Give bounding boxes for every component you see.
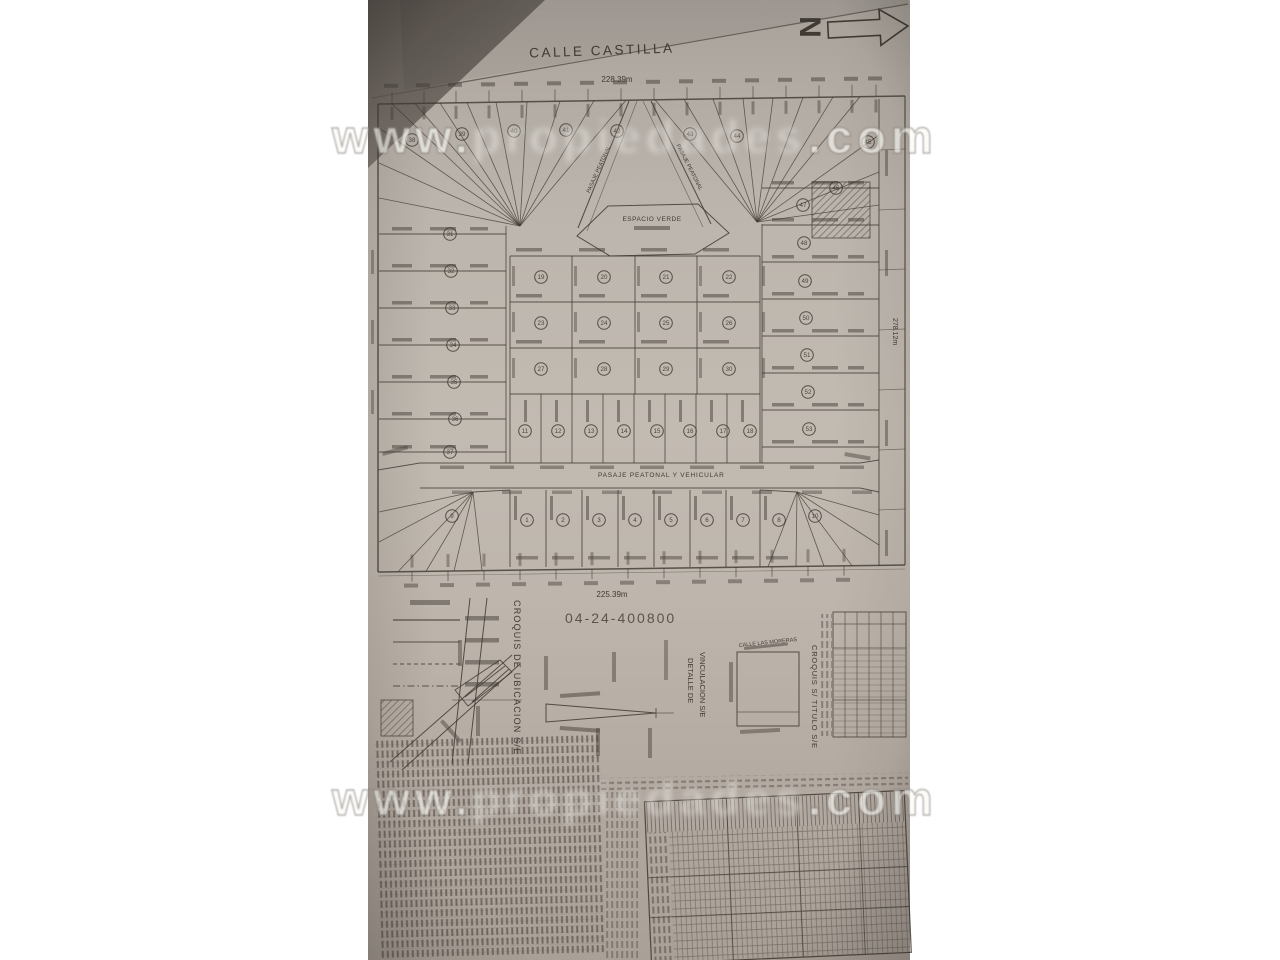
listing-photo-viewport: 1234567891011121314151617181920212223242… — [0, 0, 1280, 960]
survey-plan-photo: 1234567891011121314151617181920212223242… — [0, 0, 1280, 960]
photo-vignette — [368, 0, 910, 960]
